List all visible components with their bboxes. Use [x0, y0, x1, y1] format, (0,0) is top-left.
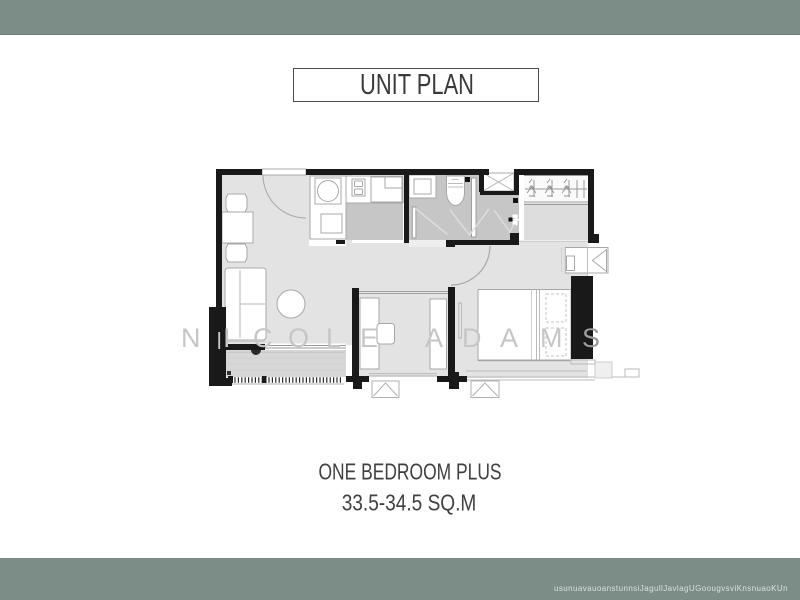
svg-text:D: D: [462, 323, 482, 353]
svg-text:A: A: [425, 323, 443, 353]
svg-text:S: S: [582, 323, 600, 353]
svg-text:C: C: [253, 323, 273, 353]
svg-text:M: M: [540, 323, 563, 353]
svg-text:A: A: [500, 323, 518, 353]
svg-text:E: E: [360, 323, 378, 353]
svg-text:L: L: [326, 323, 341, 353]
svg-text:O: O: [288, 323, 309, 353]
svg-text:N: N: [181, 323, 201, 353]
svg-text:I: I: [223, 323, 231, 353]
